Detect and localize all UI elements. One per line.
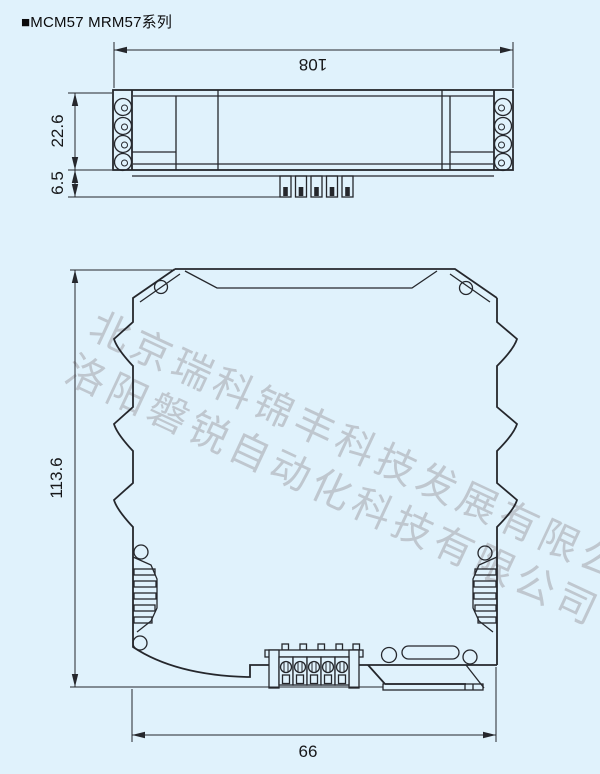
top-step-line [185, 271, 437, 288]
base-hole-left [382, 648, 397, 663]
technical-drawing: 108 22.6 6.5 [0, 0, 600, 774]
terminal-screws-right [495, 99, 512, 171]
front-outline-right [497, 298, 517, 665]
side-vent-left [133, 545, 157, 650]
terminal-screws-left [115, 99, 132, 171]
top-view: 108 22.6 6.5 [48, 42, 513, 197]
front-outline-left [114, 269, 368, 677]
dim-label-body-height: 22.6 [48, 114, 67, 147]
terminal-block [265, 644, 363, 688]
dim-label-pin-height: 6.5 [48, 171, 67, 195]
din-foot [368, 665, 497, 690]
front-view: 113.6 66 [47, 269, 517, 761]
dimension-body-height: 22.6 [48, 93, 112, 170]
series-title: ■MCM57 MRM57系列 [21, 11, 172, 32]
connector-pins [280, 176, 353, 197]
dimension-length: 108 [114, 42, 513, 88]
drawing-page: ■MCM57 MRM57系列 北京瑞科锦丰科技发展有限公司 洛阳磐锐自动化科技有… [0, 0, 600, 774]
dim-label-length: 108 [299, 55, 327, 74]
top-view-body [113, 90, 513, 170]
side-vent-right [463, 546, 497, 664]
end-cap-left [132, 90, 218, 170]
dim-label-width: 66 [299, 742, 318, 761]
dimension-pin-height: 6.5 [48, 170, 280, 197]
dimension-height: 113.6 [47, 270, 383, 687]
end-cap-right [442, 90, 494, 170]
base-slot [402, 646, 459, 659]
dim-label-height: 113.6 [47, 457, 66, 498]
